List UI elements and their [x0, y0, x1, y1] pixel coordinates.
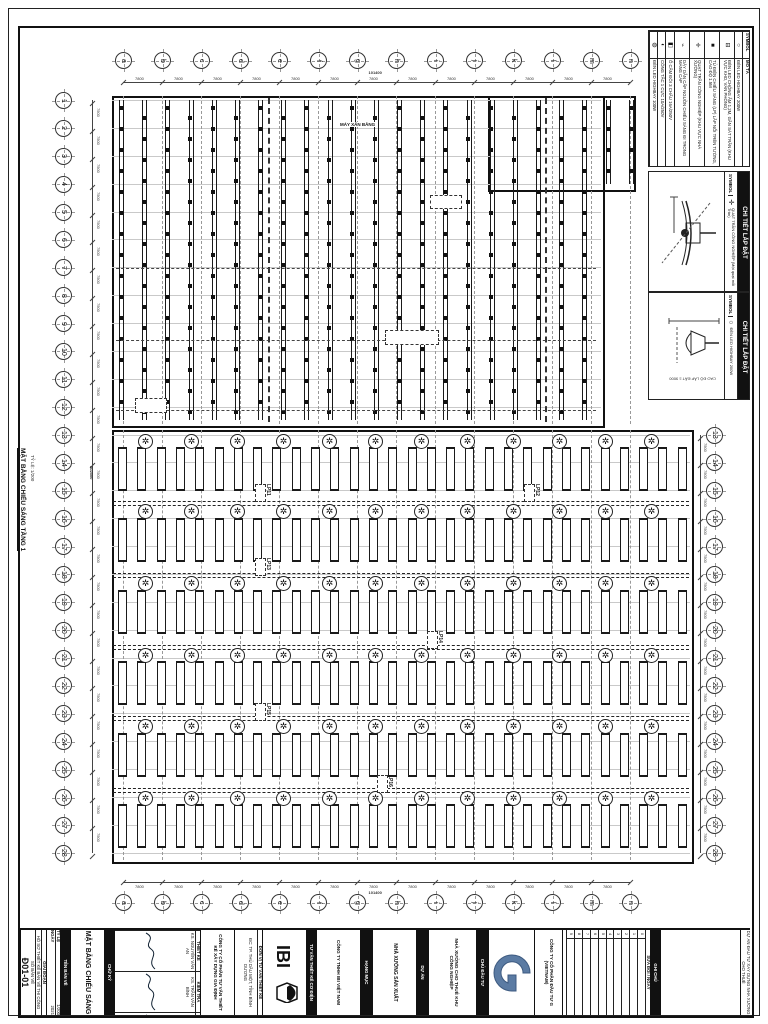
grid-bubble-row: 13 [55, 427, 72, 444]
detail-highbay-note: CAO ĐỘ LẮP ĐẶT ≥ 9000 [670, 377, 717, 382]
highbay-fixture [281, 221, 285, 225]
highbay-fixture [211, 148, 215, 152]
dimension-value: 7500 [96, 331, 100, 341]
dimension-value: 7800 [213, 885, 222, 889]
ceiling-fan-icon: ✲ [414, 719, 429, 734]
highbay-fixture [281, 368, 285, 372]
highbay-fixture [443, 211, 447, 215]
titleblock-title-cell: MẶT BẰNG CHIẾU SÁNG [70, 930, 104, 1015]
highbay-fixture [188, 137, 192, 141]
linear-fixture [678, 590, 687, 634]
highbay-fixture [258, 127, 262, 131]
linear-fixture [485, 590, 494, 634]
linear-fixture [620, 661, 629, 705]
linear-fixture [465, 447, 474, 491]
legend-symbol-icon: ✛ [689, 32, 704, 59]
highbay-fixture [489, 148, 493, 152]
highbay-fixture [327, 389, 331, 393]
highbay-fixture [397, 190, 401, 194]
highbay-fixture [443, 190, 447, 194]
highbay-fixture [443, 316, 447, 320]
highbay-detail-illustration [665, 313, 721, 373]
highbay-fixture [466, 137, 470, 141]
highbay-fixture [234, 242, 238, 246]
highbay-fixture [304, 295, 308, 299]
dimension-value: 7800 [330, 77, 339, 81]
highbay-fixture [234, 221, 238, 225]
grid-bubble-col: d [232, 52, 249, 69]
highbay-fixture [327, 284, 331, 288]
grid-bubble-row: 28 [706, 845, 723, 862]
grid-line-col [162, 96, 163, 424]
linear-fixture [215, 733, 224, 777]
linear-fixture [678, 804, 687, 848]
ceiling-fan-icon: ✲ [644, 576, 659, 591]
linear-fixture [504, 447, 513, 491]
highbay-fixture [188, 221, 192, 225]
titleblock-project-cell: NHÀ XƯỞNG CHO THUÊ KHU CÔNG NGHIỆP [428, 930, 476, 1015]
dimension-line [700, 435, 701, 853]
linear-fixture [601, 804, 610, 848]
revision-row: 2 [621, 930, 629, 1015]
highbay-fixture [281, 179, 285, 183]
highbay-fixture [536, 169, 540, 173]
linear-fixture [311, 661, 320, 705]
highbay-fixture [466, 305, 470, 309]
highbay-fixture [211, 358, 215, 362]
project-name: NHÀ XƯỞNG CHO THUÊ KHU CÔNG NGHIỆP [429, 930, 476, 1015]
linear-fixture [446, 804, 455, 848]
highbay-fixture [165, 295, 169, 299]
linear-fixture [427, 518, 436, 562]
ceiling-fan-icon: ✲ [184, 504, 199, 519]
linear-fixture [465, 733, 474, 777]
revision-row: 1 [629, 930, 637, 1015]
highbay-fixture [327, 200, 331, 204]
linear-fixture [137, 733, 146, 777]
ceiling-fan-icon: ✲ [276, 434, 291, 449]
highbay-fixture [188, 305, 192, 309]
linear-fixture [195, 590, 204, 634]
highbay-fixture [304, 106, 308, 110]
highbay-fixture [373, 116, 377, 120]
linear-fixture [446, 590, 455, 634]
ceiling-fan-icon: ✲ [644, 504, 659, 519]
highbay-fixture [188, 179, 192, 183]
highbay-fixture [165, 358, 169, 362]
legend-symbol-icon: ◐ [658, 32, 666, 59]
highbay-fixture [350, 232, 354, 236]
highbay-fixture [258, 316, 262, 320]
highbay-fixture [559, 347, 563, 351]
highbay-fixture [512, 200, 516, 204]
dimension-value: 7500 [96, 638, 100, 648]
grid-bubble-row: 21 [55, 650, 72, 667]
lighting-rail [235, 100, 240, 420]
highbay-fixture [165, 106, 169, 110]
ceiling-fan-icon: ✲ [138, 576, 153, 591]
grid-bubble-row: 13 [706, 427, 723, 444]
highbay-fixture [304, 253, 308, 257]
dimension-value: 7500 [703, 638, 707, 648]
highbay-fixture [443, 253, 447, 257]
highbay-fixture [327, 305, 331, 309]
ceiling-fan-icon: ✲ [460, 434, 475, 449]
linear-fixture [485, 804, 494, 848]
linear-fixture [658, 447, 667, 491]
linear-fixture [292, 661, 301, 705]
grid-bubble-row: 19 [706, 594, 723, 611]
highbay-fixture [536, 316, 540, 320]
grid-bubble-col: m [583, 52, 600, 69]
highbay-fixture [258, 400, 262, 404]
dimension-value: 7500 [96, 777, 100, 787]
linear-fixture [330, 804, 339, 848]
machine-label: MÁY XẤN BẰNG [340, 122, 375, 127]
dimension-value: 7500 [96, 721, 100, 731]
highbay-fixture [304, 400, 308, 404]
highbay-fixture [142, 221, 146, 225]
linear-fixture [253, 590, 262, 634]
highbay-fixture [327, 368, 331, 372]
ceiling-fan-icon: ✲ [276, 576, 291, 591]
highbay-fixture [234, 116, 238, 120]
highbay-fixture [119, 148, 123, 152]
lighting-panel-label: LP11 [265, 484, 271, 496]
linear-fixture [465, 661, 474, 705]
ceiling-fan-icon: ✲ [184, 576, 199, 591]
highbay-fixture [489, 379, 493, 383]
highbay-fixture [142, 116, 146, 120]
highbay-fixture [420, 347, 424, 351]
linear-fixture [215, 518, 224, 562]
linear-fixture [427, 661, 436, 705]
dimension-value: 7500 [703, 554, 707, 564]
linear-fixture [388, 447, 397, 491]
grid-bubble-row: 26 [55, 789, 72, 806]
owner-name: CÔNG TY CỔ PHẦN ĐẦU TƯ G (VIETNAM) [535, 930, 562, 1015]
dimension-value: 7500 [703, 693, 707, 703]
linear-fixture [523, 590, 532, 634]
highbay-fixture [350, 295, 354, 299]
highbay-fixture [489, 358, 493, 362]
highbay-fixture [397, 232, 401, 236]
grid-bubble-row: 27 [706, 817, 723, 834]
dimension-value: 7500 [703, 777, 707, 787]
linear-fixture [658, 661, 667, 705]
plan-scale-text: TỶ LỆ: 1/200 [30, 455, 35, 481]
highbay-fixture [489, 169, 493, 173]
grid-bubble-row: 20 [55, 622, 72, 639]
linear-fixture [272, 590, 281, 634]
linear-fixture [176, 518, 185, 562]
highbay-fixture [234, 200, 238, 204]
highbay-fixture [165, 316, 169, 320]
grid-bubble-col: b [154, 894, 171, 911]
overall-dimension-value: 101400 [369, 891, 382, 895]
highbay-fixture [420, 263, 424, 267]
linear-fixture [215, 804, 224, 848]
highbay-fixture [466, 389, 470, 393]
highbay-fixture [234, 158, 238, 162]
highbay-symbol-icon: ○ [728, 317, 735, 327]
ceiling-fan-icon: ✲ [276, 791, 291, 806]
highbay-fixture [188, 116, 192, 120]
highbay-fixture [234, 347, 238, 351]
dimension-value: 7800 [213, 77, 222, 81]
grid-line-col [474, 96, 475, 424]
highbay-fixture [466, 221, 470, 225]
linear-fixture [272, 733, 281, 777]
highbay-fixture [327, 242, 331, 246]
highbay-fixture [536, 400, 540, 404]
dimension-value: 7800 [447, 885, 456, 889]
highbay-fixture [443, 358, 447, 362]
highbay-fixture [258, 169, 262, 173]
ibi-sub-text: M&E ENGINEERING [262, 930, 263, 1015]
highbay-fixture [582, 379, 586, 383]
highbay-fixture [211, 127, 215, 131]
linear-fixture [157, 590, 166, 634]
title-block: GIAI ĐOẠN HỒ SƠ THIẾT KẾ BẢN VẼ THI CÔNG… [20, 928, 750, 1015]
dimension-value: 7500 [703, 721, 707, 731]
detail-fan-band: CHI TIẾT LẮP ĐẶT [737, 172, 750, 292]
ceiling-fan-icon: ✲ [322, 791, 337, 806]
legend-desc: QUẠT TRẦN CÔNG NGHIỆP (KHU VỰC NHÀ XƯỞNG… [689, 59, 704, 168]
signature-squiggle [142, 931, 158, 971]
linear-fixture [543, 733, 552, 777]
legend-symbol-icon: ◍ [650, 32, 658, 59]
highbay-fixture [119, 253, 123, 257]
linear-fixture [658, 804, 667, 848]
highbay-fixture [397, 106, 401, 110]
highbay-fixture [234, 305, 238, 309]
highbay-fixture [559, 137, 563, 141]
linear-fixture [581, 447, 590, 491]
ceiling-fan-icon: ✲ [322, 719, 337, 734]
linear-fixture [504, 590, 513, 634]
highbay-fixture [629, 148, 633, 152]
linear-fixture [523, 733, 532, 777]
linear-fixture [330, 447, 339, 491]
sheet-number: Đ01-01 [20, 930, 30, 1015]
ceiling-fan-icon: ✲ [276, 719, 291, 734]
dimension-value: 7500 [96, 554, 100, 564]
linear-fixture [157, 661, 166, 705]
highbay-fixture [512, 347, 516, 351]
highbay-fixture [165, 232, 169, 236]
linear-fixture [195, 447, 204, 491]
highbay-fixture [119, 400, 123, 404]
highbay-fixture [466, 263, 470, 267]
dimension-value: 7500 [96, 387, 100, 397]
plan-scale: TỶ LỆ: 1/200 [30, 455, 38, 535]
linear-fixture [195, 804, 204, 848]
revision-row: 9 [566, 930, 574, 1015]
grid-bubble-row: 25 [706, 761, 723, 778]
highbay-fixture [443, 379, 447, 383]
highbay-fixture [606, 169, 610, 173]
highbay-fixture [536, 253, 540, 257]
highbay-fixture [119, 232, 123, 236]
grid-bubble-col: a [115, 52, 132, 69]
highbay-fixture [304, 169, 308, 173]
highbay-fixture [512, 389, 516, 393]
linear-fixture [234, 590, 243, 634]
highbay-fixture [211, 211, 215, 215]
linear-fixture [195, 661, 204, 705]
highbay-fixture [373, 200, 377, 204]
linear-fixture [620, 590, 629, 634]
highbay-fixture [512, 242, 516, 246]
highbay-fixture [304, 274, 308, 278]
highbay-fixture [119, 274, 123, 278]
titleblock-mep-company: CÔNG TY TNHH IBI VIỆT NAM [316, 930, 360, 1015]
highbay-fixture [536, 295, 540, 299]
highbay-fixture [304, 316, 308, 320]
linear-fixture [408, 661, 417, 705]
revision-row: 4 [606, 930, 614, 1015]
ceiling-fan-icon: ✲ [414, 791, 429, 806]
dimension-value: 7500 [96, 582, 100, 592]
ceiling-fan-icon: ✲ [184, 791, 199, 806]
linear-fixture [350, 590, 359, 634]
linear-fixture [369, 518, 378, 562]
legend-desc: Ổ CẮM ĐÔI 3 CHẤU 16A/250V [666, 59, 674, 168]
linear-fixture [215, 447, 224, 491]
linear-fixture [408, 447, 417, 491]
grid-bubble-col: h [388, 894, 405, 911]
ceiling-fan-icon: ✲ [644, 719, 659, 734]
linear-fixture [388, 804, 397, 848]
linear-fixture [176, 447, 185, 491]
lighting-rail [281, 100, 286, 420]
dimension-value: 7500 [703, 443, 707, 453]
dimension-value: 7500 [96, 192, 100, 202]
titleblock-owner-band: CHỦ ĐẦU TƯ [476, 930, 488, 1015]
highbay-fixture [119, 106, 123, 110]
linear-fixture [639, 804, 648, 848]
highbay-fixture [559, 221, 563, 225]
highbay-fixture [211, 295, 215, 299]
highbay-fixture [281, 347, 285, 351]
dimension-value: 7800 [408, 885, 417, 889]
highbay-fixture [211, 316, 215, 320]
dimension-value: 7500 [703, 470, 707, 480]
ceiling-fan-icon: ✲ [276, 648, 291, 663]
highbay-fixture [304, 190, 308, 194]
highbay-fixture [350, 190, 354, 194]
highbay-fixture [606, 106, 610, 110]
side-strip-text: DỰ ÁN ĐẦU TƯ XÂY DỰNG NHÀ XƯỞNG CHO THUÊ [741, 930, 750, 1015]
highbay-fixture [188, 263, 192, 267]
detail-box-fan: CHI TIẾT LẮP ĐẶT SYMBOL ✛ QUẠT TRẦN CÔNG… [648, 171, 750, 292]
ceiling-fan-icon: ✲ [138, 791, 153, 806]
dimension-value: 7500 [703, 749, 707, 759]
detail-box-highbay: CHI TIẾT LẮP ĐẶT SYMBOL ○ ĐÈN LED HIGHBA… [648, 292, 750, 400]
linear-fixture [195, 518, 204, 562]
grid-bubble-row: 9 [55, 315, 72, 332]
grid-bubble-row: 21 [706, 650, 723, 667]
linear-fixture [543, 804, 552, 848]
grid-bubble-col: h [388, 52, 405, 69]
grid-bubble-col: k [505, 894, 522, 911]
linear-fixture [658, 590, 667, 634]
linear-fixture [157, 447, 166, 491]
dimension-value: 7800 [564, 885, 573, 889]
highbay-fixture [119, 169, 123, 173]
linear-fixture [543, 518, 552, 562]
legend-symbol-icon: ■ [704, 32, 719, 59]
linear-fixture [523, 661, 532, 705]
detail-highbay-caption: ĐÈN LED HIGHBAY 200W [729, 328, 733, 376]
linear-fixture [427, 804, 436, 848]
highbay-fixture [512, 326, 516, 330]
highbay-fixture [559, 389, 563, 393]
highbay-fixture [582, 169, 586, 173]
highbay-fixture [281, 326, 285, 330]
highbay-fixture [327, 347, 331, 351]
dimension-value: 7800 [486, 77, 495, 81]
ceiling-fan-icon: ✲ [414, 504, 429, 519]
highbay-fixture [211, 274, 215, 278]
highbay-fixture [373, 305, 377, 309]
grid-bubble-col: n [622, 894, 639, 911]
revision-row: 3 [613, 930, 621, 1015]
grid-bubble-row: 26 [706, 789, 723, 806]
highbay-fixture [350, 400, 354, 404]
linear-fixture [639, 661, 648, 705]
linear-fixture [658, 733, 667, 777]
highbay-fixture [420, 137, 424, 141]
linear-fixture [350, 518, 359, 562]
signature-squiggle [142, 972, 158, 1012]
highbay-fixture [281, 284, 285, 288]
dimension-value: 7500 [703, 498, 707, 508]
grid-bubble-row: 10 [55, 343, 72, 360]
ceiling-fan-icon: ✲ [368, 719, 383, 734]
revision-row: 5 [598, 930, 606, 1015]
consultant-name: CÔNG TY CỔ PHẦN TƯ VẤN THIẾT KẾ XÂY DỰNG… [201, 930, 234, 1015]
grid-bubble-row: 18 [706, 566, 723, 583]
highbay-fixture [466, 326, 470, 330]
linear-fixture [118, 447, 127, 491]
highbay-fixture [466, 200, 470, 204]
dimension-value: 7800 [564, 77, 573, 81]
highbay-fixture [443, 295, 447, 299]
highbay-fixture [373, 347, 377, 351]
highbay-fixture [188, 347, 192, 351]
legend-header-desc: MÔ TẢ [742, 59, 750, 168]
highbay-fixture [582, 274, 586, 278]
dimension-value: 7500 [96, 220, 100, 230]
fan-detail-illustration [655, 193, 719, 273]
highbay-fixture [512, 263, 516, 267]
grid-bubble-row: 2 [55, 120, 72, 137]
highbay-fixture [536, 232, 540, 236]
grid-bubble-row: 20 [706, 622, 723, 639]
ceiling-fan-icon: ✲ [460, 504, 475, 519]
ceiling-fan-icon: ✲ [138, 434, 153, 449]
ceiling-fan-icon: ✲ [506, 791, 521, 806]
linear-fixture [176, 804, 185, 848]
highbay-fixture [350, 169, 354, 173]
dimension-value: 7800 [291, 77, 300, 81]
legend-table: SYMBOLMÔ TẢ○ĐÈN LED HIGHBAY 200W⊟ĐÈN LED… [649, 31, 750, 167]
revision-row: 7 [582, 930, 590, 1015]
highbay-fixture [304, 127, 308, 131]
highbay-fixture [119, 127, 123, 131]
